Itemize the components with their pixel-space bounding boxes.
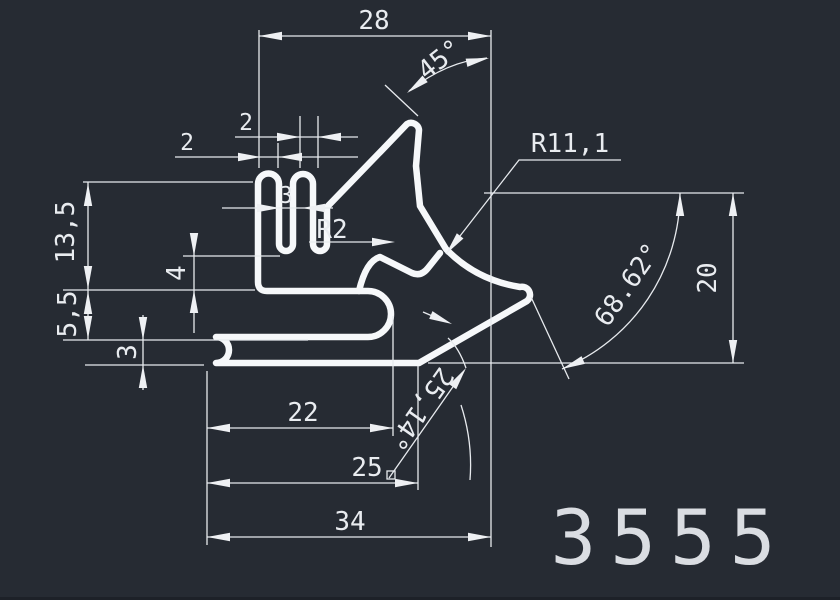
arrowhead	[279, 153, 302, 161]
dim-4-text: 4	[162, 265, 192, 281]
arrowhead	[84, 316, 92, 339]
dim-r2-text: R2	[316, 215, 347, 245]
arrowhead	[468, 32, 491, 40]
dim-68-text: 68.62°	[589, 238, 667, 332]
dimension-13-5[interactable]: 13,5	[51, 182, 255, 290]
dim-34-text: 34	[334, 507, 365, 537]
dimension-5-5[interactable]: 5,5	[53, 290, 308, 340]
arrowhead	[560, 356, 584, 373]
arrowhead	[372, 238, 395, 246]
drawing-svg: 28 45° R11,1 20 68.62° 13,5 5,5	[0, 0, 840, 600]
arrowhead	[139, 317, 147, 340]
dim-28-text: 28	[358, 6, 389, 36]
dimension-r2[interactable]: R2	[309, 215, 395, 246]
arrowhead	[84, 183, 92, 206]
arrowhead	[277, 133, 300, 141]
dim-3-slot-text: 3	[279, 183, 293, 209]
dim-5-5-text: 5,5	[53, 291, 83, 338]
arrowhead	[84, 266, 92, 289]
arrowhead	[468, 533, 491, 541]
dimension-68deg[interactable]: 68.62°	[531, 193, 684, 379]
dim-20-text: 20	[693, 262, 723, 293]
arrowhead	[190, 290, 198, 313]
arrowhead	[729, 193, 737, 216]
dim-3-left-text: 3	[113, 344, 143, 360]
arrowhead	[207, 479, 230, 487]
dim-2-b-text: 2	[180, 130, 194, 156]
dimension-4[interactable]: 4	[162, 233, 280, 333]
dimension-34[interactable]: 34	[207, 507, 491, 541]
arrowhead	[395, 479, 418, 487]
part-number-text: 3555	[550, 493, 789, 582]
dim-13-5-text: 13,5	[51, 201, 81, 264]
dim-22-text: 22	[287, 398, 318, 428]
arrowhead	[84, 291, 92, 314]
arrowhead	[729, 340, 737, 363]
cad-drawing-canvas[interactable]: 28 45° R11,1 20 68.62° 13,5 5,5	[0, 0, 840, 600]
dimension-45deg[interactable]: 45°	[385, 34, 490, 116]
dimension-20[interactable]: 20	[428, 193, 744, 363]
profile-inner-ridge[interactable]	[359, 253, 440, 291]
dim-2-a-text: 2	[239, 110, 253, 136]
arrowhead	[190, 233, 198, 256]
arrowhead	[207, 533, 230, 541]
arrowhead	[139, 365, 147, 388]
arrowhead	[318, 133, 341, 141]
arrowhead	[429, 311, 453, 328]
dim-r11-text: R11,1	[531, 129, 609, 159]
arrowhead	[466, 54, 490, 67]
arrowhead	[676, 193, 684, 216]
arrowhead	[238, 153, 261, 161]
arrowhead	[259, 32, 282, 40]
dim-25-text: 25	[351, 453, 382, 483]
arrowhead	[207, 424, 230, 432]
leader-junction[interactable]	[423, 311, 454, 328]
dimension-3-left[interactable]: 3	[85, 315, 204, 390]
